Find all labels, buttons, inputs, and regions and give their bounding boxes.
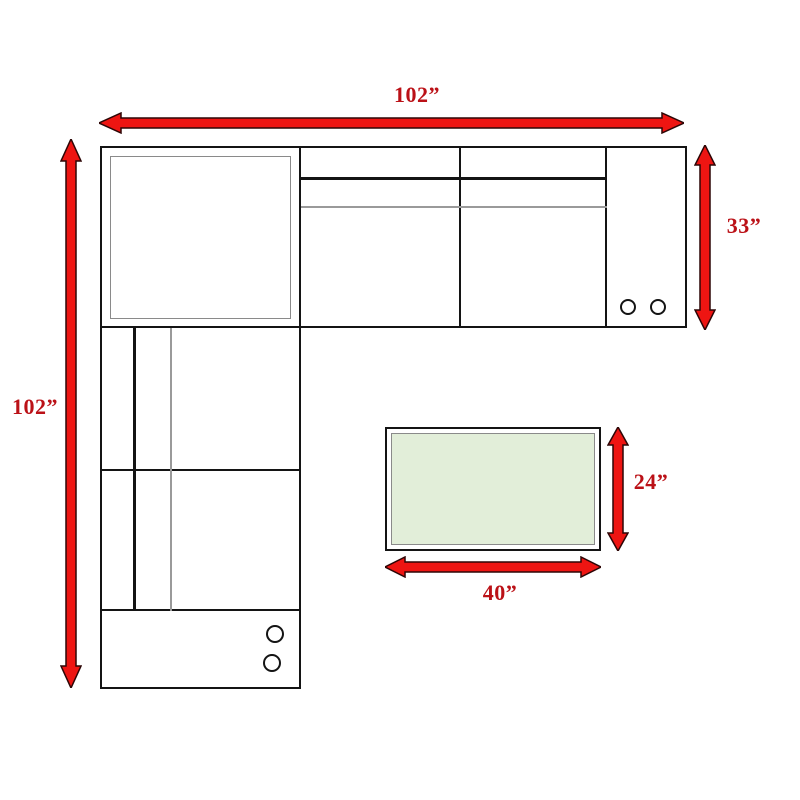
armrest-knob-icon	[263, 654, 281, 672]
top-backrest-line	[301, 177, 607, 180]
sofa-depth-label: 33”	[712, 213, 776, 239]
armrest-knob-icon	[266, 625, 284, 643]
top-seat-cushion-line	[301, 206, 607, 208]
left-seat-cushion-line	[170, 328, 172, 611]
ottoman-width-dimension-arrow	[385, 556, 601, 578]
left-seat-section-2	[100, 469, 301, 611]
top-seat-section-1	[299, 146, 461, 328]
top-seat-section-2	[459, 146, 607, 328]
left-backrest-line	[133, 328, 136, 611]
corner-cushion-inset	[110, 156, 291, 319]
armrest-knob-icon	[620, 299, 636, 315]
sectional-depth-label: 102”	[2, 394, 68, 420]
sectional-width-label: 102”	[357, 82, 477, 108]
bottom-armrest-section	[100, 609, 301, 689]
armrest-knob-icon	[650, 299, 666, 315]
ottoman-cushion	[391, 433, 595, 545]
ottoman-depth-label: 24”	[619, 469, 683, 495]
width-dimension-arrow	[99, 112, 684, 134]
right-armrest-section	[605, 146, 687, 328]
left-seat-section-1	[100, 326, 301, 471]
sectional-sofa-dimension-diagram: 102” 102” 33” 24” 40”	[0, 0, 800, 800]
ottoman-width-label: 40”	[455, 580, 545, 606]
